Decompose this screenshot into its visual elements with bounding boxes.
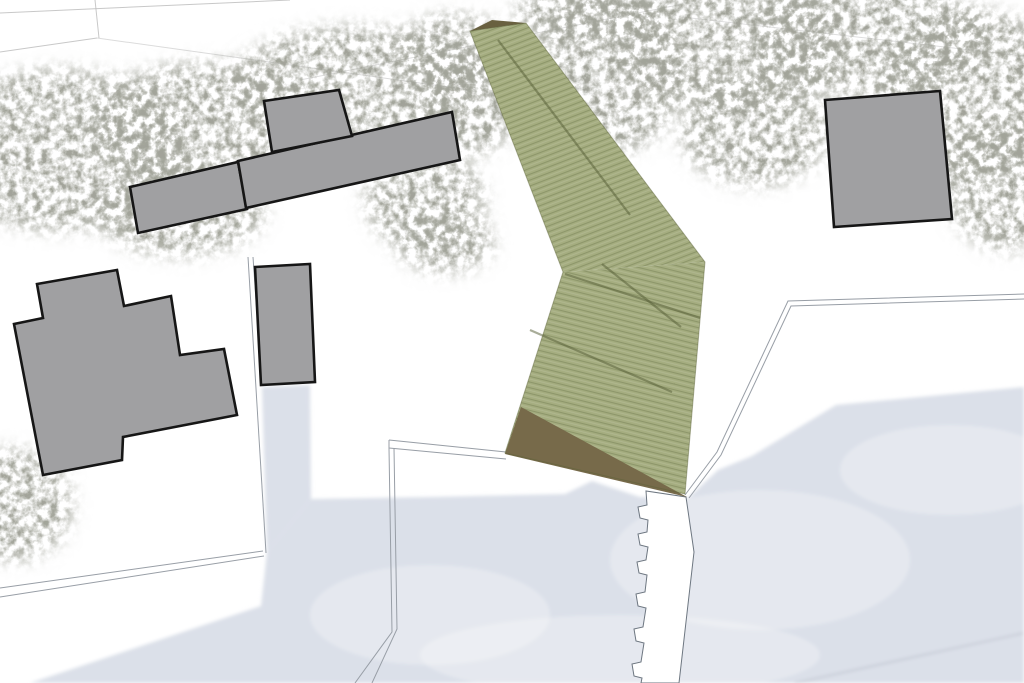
vegetation-patch [397, 212, 493, 272]
path-line [389, 448, 506, 459]
building-small-rect [255, 264, 315, 385]
road-line [0, 0, 290, 13]
path-line [0, 551, 263, 588]
site-plan-canvas [0, 0, 1024, 683]
path-line [0, 556, 264, 597]
road-line [95, 0, 99, 38]
vegetation-patch [680, 75, 830, 185]
building-right-square [825, 91, 952, 227]
road-line [0, 38, 97, 52]
site-plan [0, 0, 1024, 683]
path-line [389, 440, 506, 452]
building-large-irregular [14, 270, 237, 475]
